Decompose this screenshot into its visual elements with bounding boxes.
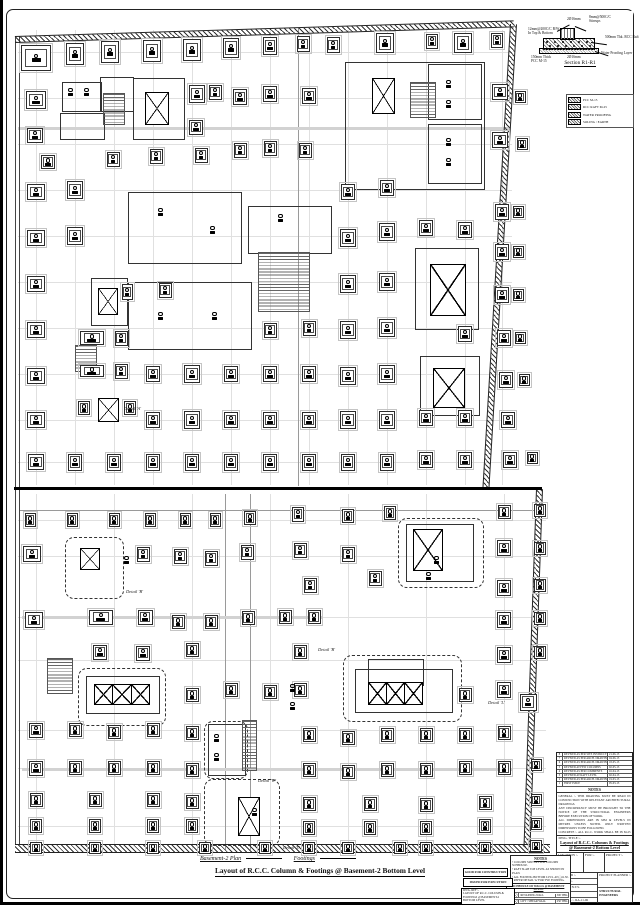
column-mark — [210, 226, 215, 234]
column-rect — [189, 375, 195, 379]
column-dot — [483, 799, 487, 803]
legend-item-basement-plan: Basement-2 Plan — [200, 856, 241, 862]
column-rect — [312, 618, 317, 621]
column-glyph — [28, 516, 32, 524]
column-glyph — [72, 458, 77, 466]
column-glyph — [446, 100, 451, 108]
footing-inner — [536, 613, 545, 622]
column-mark — [426, 572, 431, 580]
column-rect — [190, 771, 195, 774]
footing-inner — [457, 36, 470, 50]
footing-inner — [422, 844, 431, 852]
revision-description: REVISED AT RAFT LEVEL — [563, 774, 608, 777]
column-dot — [203, 844, 207, 848]
footing-inner — [30, 415, 43, 426]
column-dot — [303, 146, 307, 150]
column-rect — [345, 421, 351, 425]
stair-hatch — [47, 658, 73, 694]
column-glyph — [190, 729, 195, 737]
column-dot — [346, 768, 350, 772]
column-glyph — [290, 702, 295, 710]
column-dot — [518, 334, 522, 338]
revision-date: 18-05-13 — [608, 761, 632, 764]
column-glyph — [212, 312, 217, 320]
column-glyph — [189, 416, 195, 424]
section-label: 8mm@500C/C Stirrups — [589, 15, 613, 23]
column-dot — [508, 456, 512, 460]
column-dot — [483, 822, 487, 826]
column-dot — [33, 131, 37, 135]
footing-symbol — [342, 765, 355, 779]
column-glyph — [267, 42, 272, 50]
column-glyph — [346, 844, 351, 851]
column-dot — [538, 506, 542, 510]
footing-inner — [226, 369, 236, 380]
footing-symbol — [186, 763, 199, 777]
footing-symbol — [27, 322, 45, 338]
footing-symbol — [420, 728, 433, 742]
footing-symbol — [420, 763, 433, 777]
footing-inner — [226, 685, 235, 695]
legend-line — [246, 858, 282, 859]
footing-inner — [186, 368, 198, 380]
footing-symbol — [30, 793, 43, 807]
column-rect — [33, 377, 40, 380]
column-rect — [502, 513, 507, 516]
footing-symbol — [23, 546, 41, 562]
footing-symbol — [80, 331, 104, 345]
column-rect — [228, 375, 233, 378]
column-glyph — [213, 88, 218, 96]
column-rect — [212, 317, 217, 320]
column-rect — [87, 372, 96, 375]
footing-symbol — [342, 509, 354, 523]
column-rect — [268, 149, 273, 152]
column-dot — [398, 844, 402, 848]
footing-inner — [343, 456, 353, 468]
footing-symbol — [513, 246, 524, 258]
column-glyph — [149, 47, 156, 56]
column-glyph — [190, 822, 195, 830]
column-rect — [32, 58, 41, 62]
column-rect — [189, 463, 194, 466]
footing-symbol — [302, 454, 316, 471]
footing-inner — [460, 329, 470, 340]
footing-symbol — [369, 571, 382, 586]
footing-inner — [499, 728, 508, 738]
column-glyph — [31, 616, 38, 624]
detail-label: Detail 'B' — [126, 589, 143, 594]
column-glyph — [73, 726, 78, 734]
footing-symbol — [89, 610, 113, 625]
column-rect — [307, 829, 312, 832]
column-dot — [502, 651, 506, 655]
footing-inner — [160, 285, 169, 295]
column-glyph — [518, 93, 522, 100]
column-dot — [151, 844, 155, 848]
column-glyph — [32, 131, 38, 139]
column-rect — [538, 549, 543, 552]
footing-symbol — [498, 761, 511, 775]
footing-symbol — [186, 726, 199, 740]
column-glyph — [150, 416, 155, 424]
column-glyph — [33, 458, 39, 466]
column-rect — [34, 801, 39, 804]
column-dot — [248, 514, 252, 518]
column-dot — [34, 188, 38, 192]
column-rect — [446, 85, 451, 88]
column-rect — [538, 653, 543, 656]
column-dot — [522, 376, 526, 380]
footing-inner — [265, 325, 274, 335]
column-rect — [33, 285, 40, 288]
column-dot — [214, 734, 218, 738]
footing-symbol — [299, 143, 312, 158]
section-title: Section R1-R1 — [527, 60, 633, 66]
footing-symbol — [93, 645, 107, 660]
column-dot — [307, 731, 311, 735]
column-dot — [34, 54, 38, 58]
footing-symbol — [503, 452, 517, 468]
room-outline — [428, 64, 482, 120]
column-rect — [483, 827, 488, 830]
footing-symbol — [263, 366, 277, 382]
column-glyph — [426, 572, 431, 580]
footing-inner — [309, 612, 318, 622]
footing-symbol — [279, 610, 292, 624]
footing-symbol — [264, 685, 277, 699]
column-rect — [499, 253, 504, 256]
footing-inner — [187, 728, 196, 738]
column-rect — [194, 95, 200, 99]
footing-inner — [265, 369, 275, 380]
column-glyph — [119, 334, 124, 342]
column-dot — [534, 842, 538, 846]
footing-symbol — [244, 511, 256, 525]
column-dot — [229, 686, 233, 690]
column-glyph — [70, 516, 74, 524]
footing-inner — [30, 279, 43, 290]
footing-inner — [104, 45, 117, 60]
column-dot — [268, 370, 272, 374]
footing-inner — [116, 366, 125, 376]
column-dot — [190, 729, 194, 733]
column-dot — [346, 280, 350, 284]
footing-symbol — [263, 412, 277, 428]
column-glyph — [34, 844, 39, 851]
column-dot — [504, 376, 508, 380]
column-rect — [209, 623, 214, 626]
column-glyph — [209, 554, 214, 562]
column-dot — [463, 456, 467, 460]
footing-symbol — [517, 138, 528, 150]
column-dot — [446, 80, 450, 84]
leader-line — [575, 26, 586, 31]
footing-inner — [460, 763, 469, 773]
column-rect — [203, 849, 208, 852]
footing-symbol — [381, 763, 394, 777]
footing-symbol — [224, 412, 238, 428]
column-rect — [298, 653, 303, 656]
footing-inner — [175, 551, 184, 561]
footing-inner — [343, 187, 353, 198]
room-outline — [128, 282, 252, 350]
column-dot — [534, 796, 538, 800]
footing-inner — [265, 415, 275, 426]
column-rect — [423, 461, 428, 464]
column-rect — [140, 654, 145, 657]
footing-inner — [501, 375, 511, 386]
column-rect — [534, 847, 539, 850]
footing-inner — [210, 87, 219, 97]
column-rect — [33, 463, 39, 466]
column-rect — [158, 213, 163, 216]
lift-shaft — [433, 368, 465, 408]
column-rect — [263, 849, 268, 852]
footing-inner — [146, 44, 159, 59]
column-glyph — [298, 648, 303, 656]
column-dot — [163, 286, 167, 290]
column-dot — [446, 158, 450, 162]
footing-inner — [226, 415, 236, 426]
column-glyph — [301, 40, 306, 48]
footing-symbol — [180, 513, 191, 527]
footing-inner — [149, 821, 158, 831]
footing-symbol — [420, 842, 432, 854]
footing-inner — [43, 157, 53, 167]
column-rect — [303, 151, 308, 154]
column-rect — [189, 50, 196, 54]
column-glyph — [190, 646, 195, 654]
footing-symbol — [78, 401, 90, 415]
footing-inner — [69, 184, 81, 196]
column-rect — [73, 731, 78, 734]
column-glyph — [33, 416, 40, 424]
footing-inner — [187, 690, 196, 700]
column-rect — [483, 849, 488, 852]
column-dot — [385, 184, 389, 188]
footing-symbol — [380, 180, 394, 196]
column-dot — [298, 648, 302, 652]
footing-inner — [421, 730, 430, 740]
footing-inner — [499, 583, 509, 594]
footing-inner — [370, 573, 379, 583]
column-glyph — [148, 516, 152, 524]
column-rect — [163, 291, 168, 294]
footing-symbol — [458, 452, 472, 468]
footing-symbol — [136, 646, 150, 661]
footing-symbol — [420, 821, 432, 835]
footing-symbol — [426, 34, 438, 49]
column-rect — [119, 372, 124, 375]
column-rect — [82, 409, 87, 412]
column-rect — [501, 589, 506, 592]
column-dot — [307, 766, 311, 770]
footing-inner — [261, 844, 270, 852]
footing-symbol — [303, 797, 316, 811]
footing-symbol — [66, 43, 84, 65]
column-dot — [90, 367, 94, 371]
footing-inner — [481, 844, 490, 852]
column-rect — [298, 551, 303, 554]
column-dot — [385, 228, 389, 232]
column-dot — [516, 291, 520, 295]
column-glyph — [112, 764, 117, 772]
column-dot — [534, 820, 538, 824]
column-dot — [385, 370, 389, 374]
column-glyph — [534, 796, 538, 803]
column-mark — [446, 80, 451, 88]
column-rect — [190, 827, 195, 830]
footing-symbol — [137, 547, 150, 562]
column-glyph — [68, 88, 73, 96]
column-dot — [385, 278, 389, 282]
footing-inner — [421, 413, 431, 424]
column-glyph — [72, 232, 78, 240]
column-rect — [72, 463, 77, 466]
footing-symbol — [534, 579, 546, 592]
footing-symbol — [67, 181, 83, 199]
column-dot — [158, 208, 162, 212]
footing-symbol — [30, 842, 42, 854]
revision-date: 04-06-13 — [608, 757, 632, 760]
beam-line — [22, 768, 512, 771]
column-dot — [346, 372, 350, 376]
column-mark — [212, 312, 217, 320]
hatch-chip — [568, 112, 581, 118]
footing-symbol — [264, 141, 277, 156]
lift-cell — [386, 683, 404, 704]
column-dot — [385, 324, 389, 328]
footing-symbol — [379, 223, 395, 241]
legend-row: RCC RAFT M-25 — [568, 104, 632, 110]
footing-inner — [536, 505, 545, 514]
column-rect — [385, 771, 390, 774]
footing-inner — [304, 456, 314, 468]
footing-inner — [428, 36, 437, 46]
footing-inner — [298, 39, 307, 50]
footing-symbol — [89, 842, 101, 854]
lift-shaft — [145, 92, 169, 125]
column-rect — [73, 769, 78, 772]
footing-inner — [95, 647, 105, 657]
footing-symbol — [145, 513, 156, 527]
column-dot — [246, 614, 250, 618]
column-dot — [151, 458, 155, 462]
footing-inner — [343, 767, 352, 777]
column-rect — [72, 191, 78, 195]
column-dot — [209, 618, 213, 622]
footing-symbol — [394, 842, 406, 854]
dwg-title-cell: DWG. TITLE :- Layout of R.C.C. Columns &… — [557, 836, 632, 853]
footing-symbol — [25, 513, 36, 527]
column-glyph — [462, 226, 467, 234]
column-dot — [151, 416, 155, 420]
footing-symbol — [515, 91, 526, 103]
column-rect — [345, 239, 351, 243]
footing-symbol — [115, 364, 128, 379]
footing-symbol — [340, 321, 356, 339]
footing-symbol — [27, 276, 45, 292]
column-dot — [424, 224, 428, 228]
column-glyph — [298, 686, 303, 694]
footing-inner — [116, 333, 125, 343]
column-glyph — [33, 372, 40, 380]
footing-inner — [186, 43, 199, 58]
column-rect — [516, 213, 520, 216]
column-glyph — [29, 550, 36, 558]
footing-symbol — [185, 454, 199, 471]
stair-hatch — [258, 252, 310, 312]
column-glyph — [502, 508, 507, 516]
footing-inner — [503, 415, 513, 426]
column-rect — [516, 296, 520, 299]
column-dot — [538, 614, 542, 618]
column-glyph — [308, 581, 313, 589]
column-glyph — [446, 80, 451, 88]
column-rect — [151, 731, 156, 734]
footing-inner — [514, 208, 522, 216]
column-glyph — [306, 370, 311, 378]
footing-inner — [514, 291, 522, 299]
column-dot — [346, 512, 350, 516]
column-dot — [190, 691, 194, 695]
footing-symbol — [115, 331, 128, 346]
column-dot — [73, 726, 77, 730]
column-stub — [560, 28, 575, 40]
drawing-reference-box: DWG. REF :-LAYOUT OF R.C.C. COLUMN &FOOT… — [461, 888, 515, 905]
footing-inner — [499, 333, 509, 344]
column-rect — [534, 801, 538, 804]
footing-symbol — [68, 454, 82, 471]
column-rect — [93, 827, 98, 830]
notes-paragraphs: GENERAL :- THIS DRAWING MUST BE READ IN … — [557, 793, 632, 836]
column-rect — [28, 521, 32, 524]
column-rect — [503, 381, 508, 384]
column-rect — [345, 285, 351, 289]
footing-inner — [187, 797, 196, 807]
column-rect — [497, 141, 503, 144]
footing-inner — [497, 290, 507, 301]
column-glyph — [209, 618, 214, 626]
column-rect — [97, 653, 102, 656]
good-for-construction-stamp: GOOD FOR CONSTRUCTION — [463, 868, 508, 877]
footing-symbol — [174, 549, 187, 564]
column-dot — [383, 39, 387, 43]
column-dot — [99, 613, 103, 617]
footing-inner — [532, 761, 540, 769]
column-glyph — [538, 506, 543, 513]
column-glyph — [190, 798, 195, 806]
footing-inner — [536, 543, 545, 552]
footing-symbol — [341, 184, 355, 200]
column-glyph — [424, 766, 429, 774]
column-rect — [307, 849, 312, 852]
column-glyph — [345, 280, 351, 288]
revision-description: REVISED AS PER ARCH. DRAWING — [563, 778, 608, 781]
column-rect — [307, 329, 312, 332]
footing-inner — [32, 844, 41, 852]
column-rect — [501, 549, 506, 552]
footing-symbol — [205, 615, 218, 629]
column-rect — [388, 514, 393, 517]
column-dot — [346, 844, 350, 848]
footing-inner — [246, 513, 255, 523]
lift-cell — [112, 685, 130, 704]
column-mark — [446, 100, 451, 108]
footing-inner — [365, 799, 374, 809]
footing-inner — [366, 823, 375, 833]
